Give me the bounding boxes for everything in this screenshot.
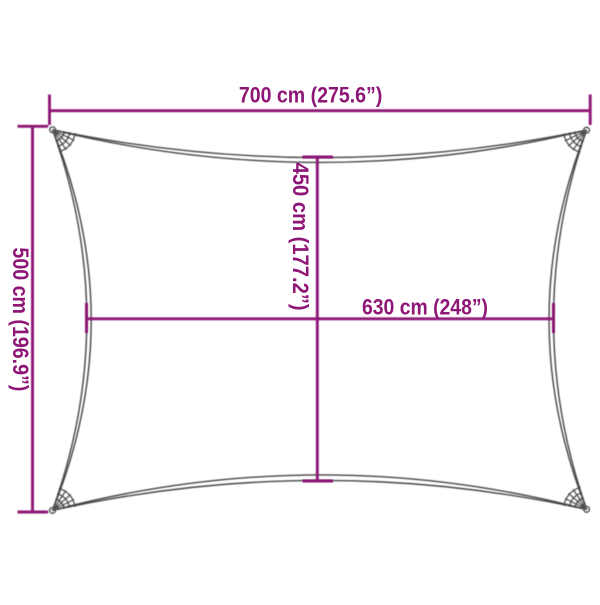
svg-text:450 cm (177.2”): 450 cm (177.2”) [288,163,313,311]
svg-text:700 cm (275.6”): 700 cm (275.6”) [239,83,383,108]
svg-text:500 cm (196.9”): 500 cm (196.9”) [8,247,33,391]
svg-text:630 cm (248”): 630 cm (248”) [362,295,488,320]
